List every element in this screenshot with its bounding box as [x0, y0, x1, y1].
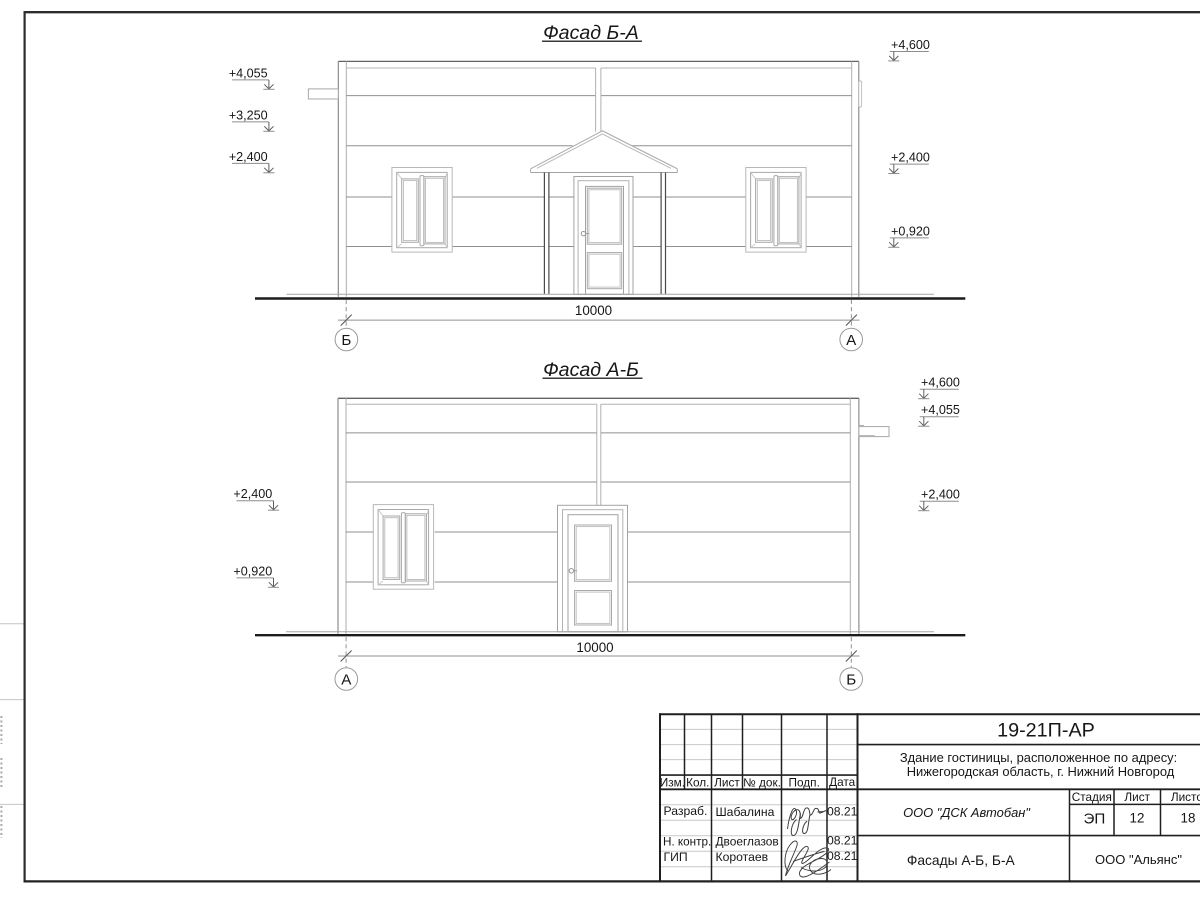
- svg-text:А: А: [341, 671, 352, 688]
- svg-text:+2,400: +2,400: [891, 151, 930, 165]
- svg-text:+3,250: +3,250: [229, 108, 268, 122]
- svg-text:Листов: Листов: [1171, 790, 1200, 804]
- svg-text:ГИП: ГИП: [664, 850, 688, 864]
- svg-text:12: 12: [1130, 811, 1145, 826]
- svg-text:Шабалина: Шабалина: [716, 805, 775, 819]
- svg-text:Двоеглазов: Двоеглазов: [716, 835, 779, 849]
- svg-text:ООО "Альянс": ООО "Альянс": [1095, 852, 1182, 867]
- svg-text:08.21: 08.21: [827, 804, 858, 818]
- svg-text:Н. контр.: Н. контр.: [663, 836, 711, 849]
- svg-text:Дата: Дата: [829, 775, 856, 789]
- svg-text:+4,055: +4,055: [229, 66, 268, 80]
- svg-text:+2,400: +2,400: [233, 487, 272, 501]
- svg-text:Лист: Лист: [1124, 790, 1150, 804]
- svg-text:Коротаев: Коротаев: [716, 850, 769, 864]
- svg-text:18: 18: [1181, 811, 1196, 826]
- svg-text:ООО "ДСК Автобан": ООО "ДСК Автобан": [903, 805, 1031, 820]
- svg-text:Фасады А-Б, Б-А: Фасады А-Б, Б-А: [907, 853, 1016, 868]
- svg-text:08.21: 08.21: [827, 834, 858, 848]
- svg-text:№ док.: № док.: [743, 775, 781, 789]
- svg-text:+4,055: +4,055: [921, 403, 960, 417]
- svg-text:+0,920: +0,920: [233, 564, 272, 578]
- svg-text:Б: Б: [341, 332, 351, 349]
- svg-text:Фасад А-Б: Фасад А-Б: [543, 359, 639, 381]
- svg-text:+0,920: +0,920: [891, 224, 930, 238]
- svg-text:Здание гостиницы, расположенно: Здание гостиницы, расположенное по адрес…: [900, 750, 1177, 765]
- svg-text:+2,400: +2,400: [229, 150, 268, 164]
- svg-text:19-21П-АР: 19-21П-АР: [997, 720, 1095, 742]
- svg-text:10000: 10000: [576, 640, 613, 655]
- svg-text:Кол.: Кол.: [686, 775, 709, 789]
- svg-text:08.21: 08.21: [827, 849, 858, 863]
- svg-text:Изм.: Изм.: [660, 775, 685, 789]
- svg-text:Стадия: Стадия: [1072, 790, 1112, 804]
- svg-text:+4,600: +4,600: [921, 376, 960, 390]
- svg-text:Б: Б: [846, 671, 856, 688]
- svg-text:Подп.: Подп.: [789, 775, 820, 789]
- svg-text:Разраб.: Разраб.: [664, 804, 708, 818]
- svg-text:А: А: [846, 332, 857, 349]
- svg-text:+4,600: +4,600: [891, 38, 930, 52]
- svg-text:ЭП: ЭП: [1083, 811, 1105, 828]
- svg-text:Нижегородская область, г. Нижн: Нижегородская область, г. Нижний Новгоро…: [907, 764, 1175, 779]
- svg-text:Лист: Лист: [714, 775, 740, 789]
- svg-text:10000: 10000: [575, 303, 612, 318]
- svg-text:+2,400: +2,400: [921, 488, 960, 502]
